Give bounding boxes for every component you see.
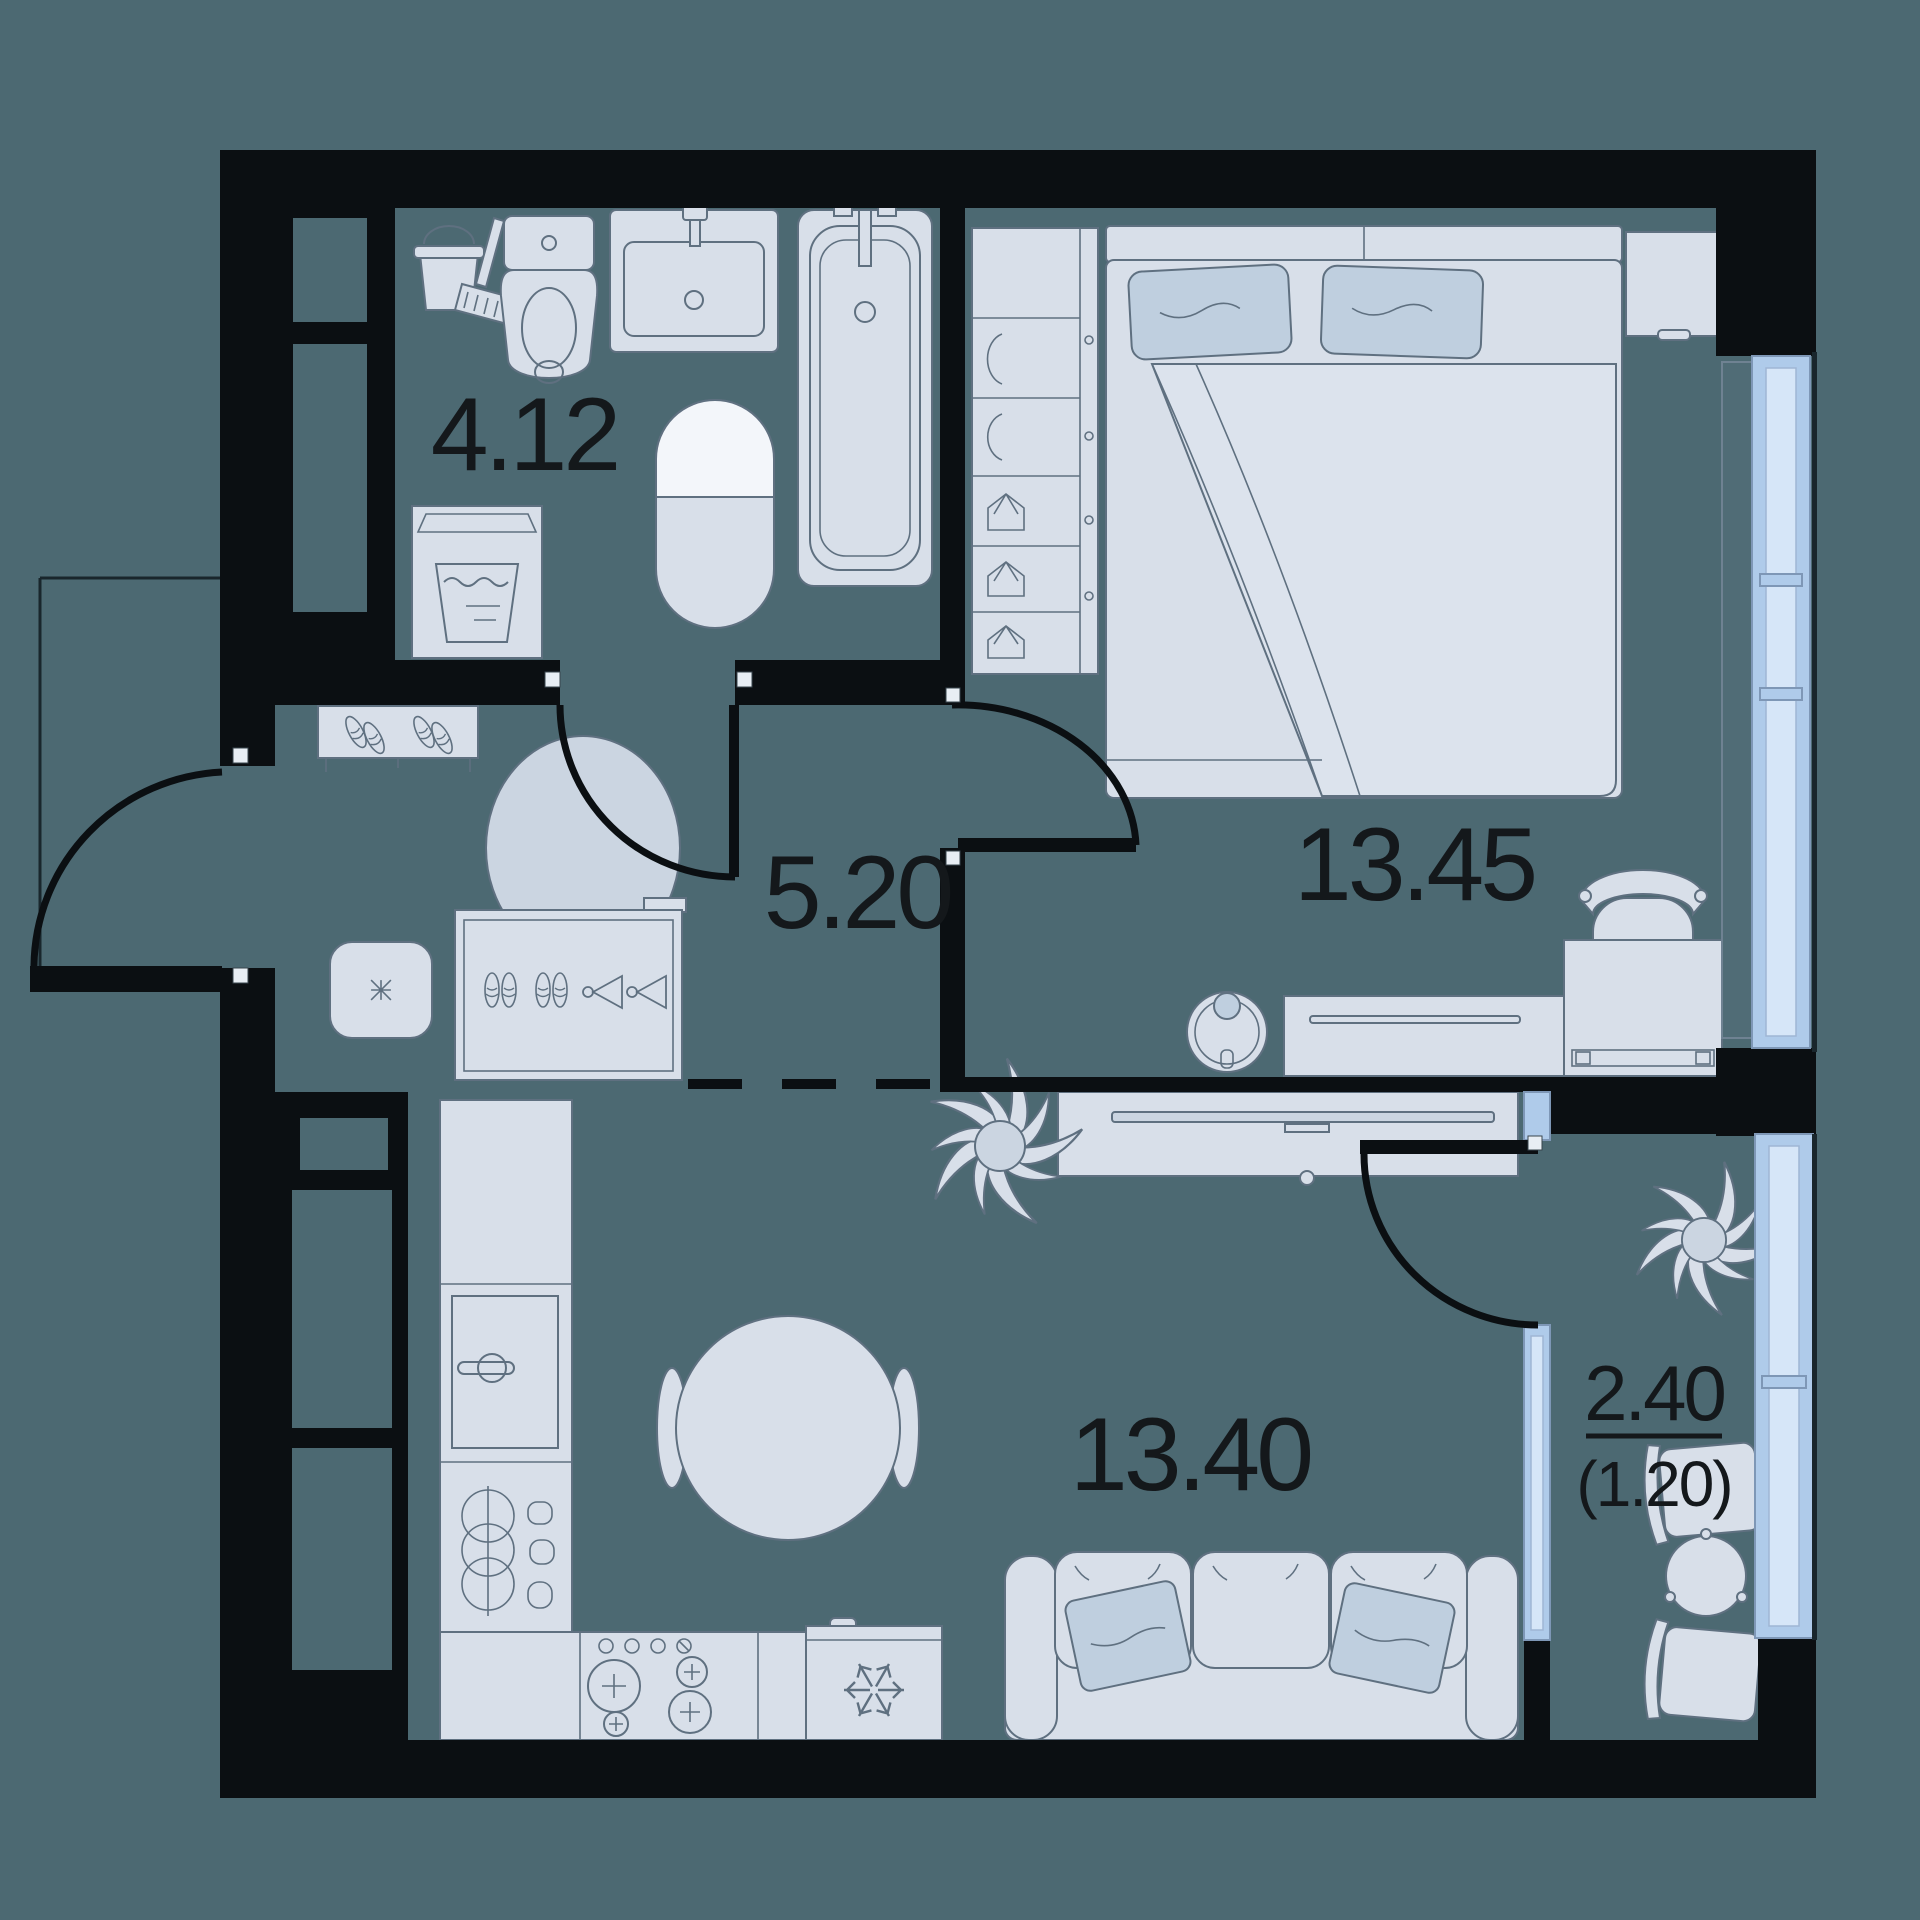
floor-plan-svg: 4.12 5.20 13.45 13.40 2.40 (1.20): [0, 0, 1920, 1920]
bathtub-icon: [798, 202, 932, 586]
entry-door-leaf: [30, 966, 222, 992]
nightstand-icon: [1626, 232, 1722, 340]
room-label-hallway: 5.20: [764, 835, 951, 951]
window-joint: [1760, 574, 1802, 586]
window-joint: [1762, 1376, 1806, 1388]
fridge-icon: [806, 1618, 942, 1740]
wall-bathroom-bottom-left: [275, 660, 560, 705]
bed-icon: [1106, 226, 1622, 798]
door-jamb: [946, 688, 960, 702]
shaft-opening: [300, 1118, 388, 1170]
wall-top: [220, 150, 1816, 208]
room-label-bathroom: 4.12: [431, 377, 617, 493]
closet-icon: [972, 228, 1098, 674]
wall-bathroom-bottom-right: [735, 660, 965, 705]
facade-line: [1812, 352, 1817, 1052]
facade-line: [1812, 1134, 1817, 1640]
wall-bottom-right-corner: [1758, 1636, 1816, 1748]
sink-icon: [610, 202, 778, 352]
balcony-door-leaf: [1360, 1140, 1538, 1154]
shaft-opening: [292, 1190, 392, 1428]
desk-icon: [1564, 940, 1722, 1076]
bathroom-door-leaf: [729, 705, 739, 877]
wall-left-lower: [220, 968, 275, 1740]
dining-table-icon: [676, 1316, 900, 1540]
door-jamb: [233, 968, 248, 983]
door-jamb: [1528, 1136, 1542, 1150]
door-jamb: [545, 672, 560, 687]
water-heater-icon: [656, 400, 774, 628]
wall-bedroom-balcony: [1542, 1077, 1718, 1134]
wall-bathroom-bedroom: [940, 205, 965, 705]
shaft-opening: [292, 1448, 392, 1670]
tv-icon: [1112, 1112, 1494, 1122]
room-label-living: 13.40: [1070, 1397, 1310, 1513]
door-jamb: [737, 672, 752, 687]
pouf-icon: [330, 942, 432, 1038]
washing-machine-icon: [412, 506, 542, 658]
tv-stand-icon: [1058, 1092, 1518, 1185]
room-label-bedroom: 13.45: [1294, 807, 1534, 923]
dresser-icon: [1284, 996, 1570, 1076]
room-label-balcony-secondary: (1.20): [1576, 1448, 1731, 1520]
robot-vacuum-icon: [1187, 992, 1267, 1072]
shaft-opening: [293, 218, 367, 322]
room-label-balcony: 2.40: [1584, 1349, 1724, 1437]
bedroom-door-leaf: [958, 838, 1136, 852]
shaft-opening: [293, 344, 367, 612]
balcony-glazing-stub: [1524, 1092, 1550, 1140]
toilet-icon: [501, 216, 597, 383]
balcony-glazing-left-glass: [1531, 1336, 1543, 1630]
wall-bedroom-living: [940, 1077, 1542, 1092]
wall-top-right-corner: [1716, 150, 1816, 356]
bedroom-window-glass: [1766, 368, 1796, 1036]
door-jamb: [233, 748, 248, 763]
sofa-icon: [1005, 1552, 1518, 1740]
wall-bottom: [220, 1740, 1816, 1798]
floor-plan: 4.12 5.20 13.45 13.40 2.40 (1.20): [0, 0, 1920, 1920]
wall-left-upper: [220, 150, 275, 766]
window-joint: [1760, 688, 1802, 700]
wall-balcony-left-stub: [1524, 1640, 1550, 1740]
wardrobe-icon: [455, 898, 686, 1080]
wall-right-mid: [1716, 1048, 1816, 1136]
window-sill: [1722, 362, 1752, 1038]
